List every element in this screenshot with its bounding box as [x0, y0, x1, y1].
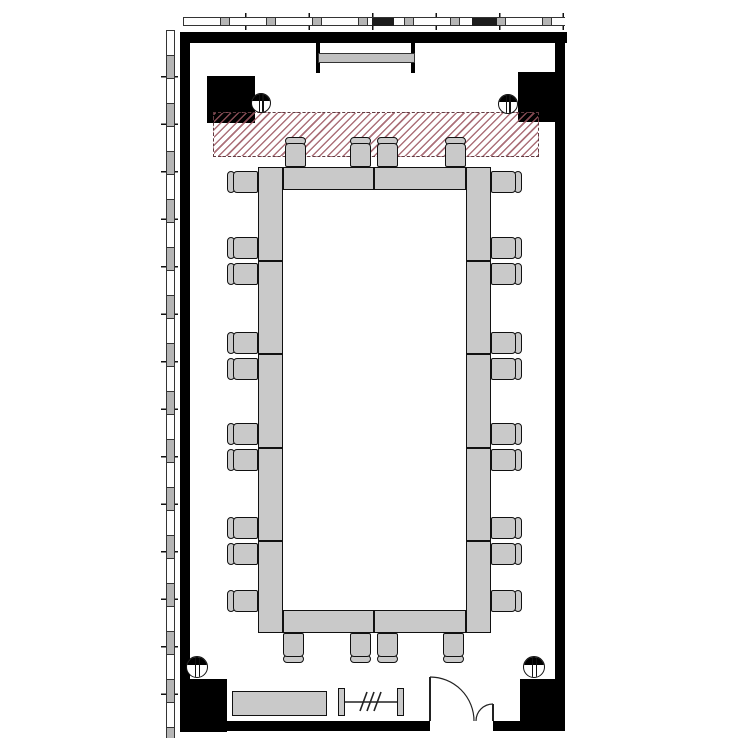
door-swing-main — [430, 677, 474, 721]
door-swing-small — [476, 704, 493, 721]
door-and-symbol-overlay — [0, 0, 750, 750]
floor-plan — [0, 0, 750, 750]
